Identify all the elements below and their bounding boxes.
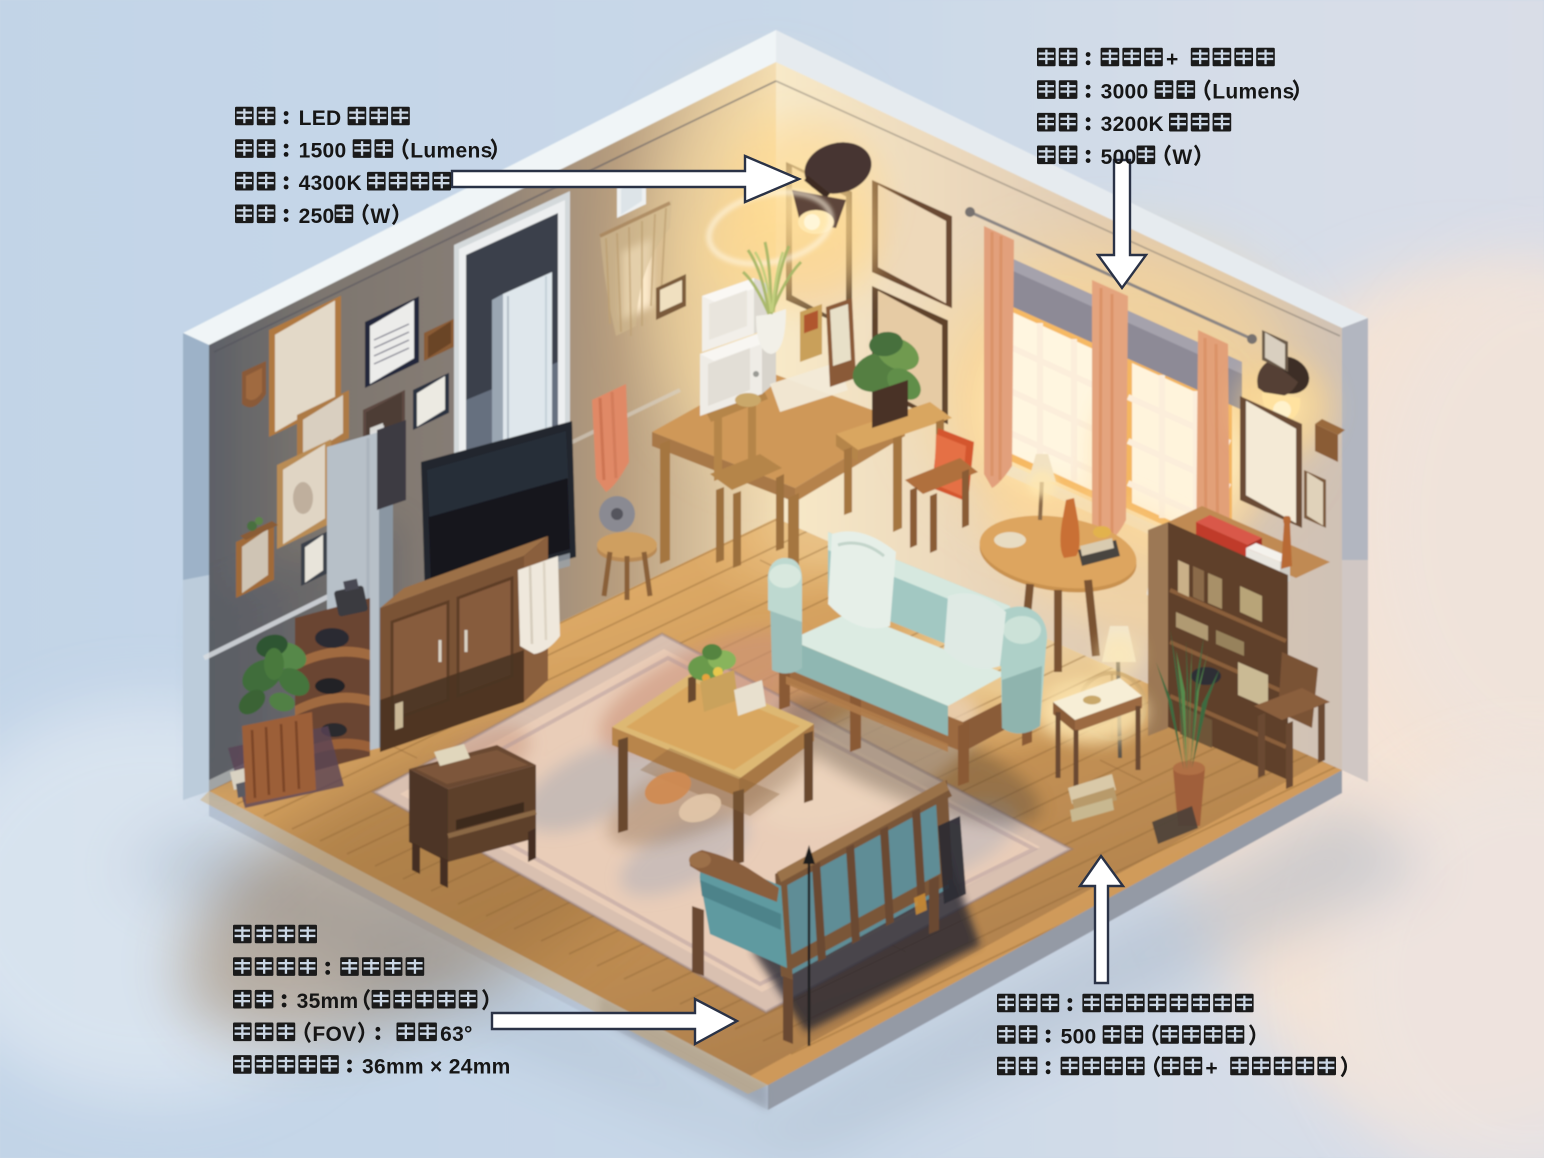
svg-text:+: + [1166, 48, 1179, 71]
svg-text:LED: LED [299, 107, 342, 130]
svg-text:250: 250 [299, 205, 335, 228]
svg-text:3200K: 3200K [1101, 113, 1164, 136]
svg-text:W: W [1172, 146, 1192, 169]
svg-text:500: 500 [1101, 146, 1137, 169]
svg-text:500: 500 [1061, 1026, 1097, 1049]
svg-text:35mm: 35mm [297, 990, 359, 1013]
svg-text:1500: 1500 [299, 140, 347, 163]
svg-text:63°: 63° [440, 1023, 473, 1046]
svg-text:36mm × 24mm: 36mm × 24mm [362, 1055, 511, 1078]
svg-text:Lumens: Lumens [1212, 81, 1294, 104]
svg-text:3000: 3000 [1101, 81, 1149, 104]
svg-text:W: W [370, 205, 390, 228]
svg-text:4300K: 4300K [299, 172, 362, 195]
svg-text:FOV: FOV [312, 1023, 356, 1046]
svg-text:Lumens: Lumens [410, 140, 492, 163]
svg-text:+: + [1205, 1057, 1218, 1080]
